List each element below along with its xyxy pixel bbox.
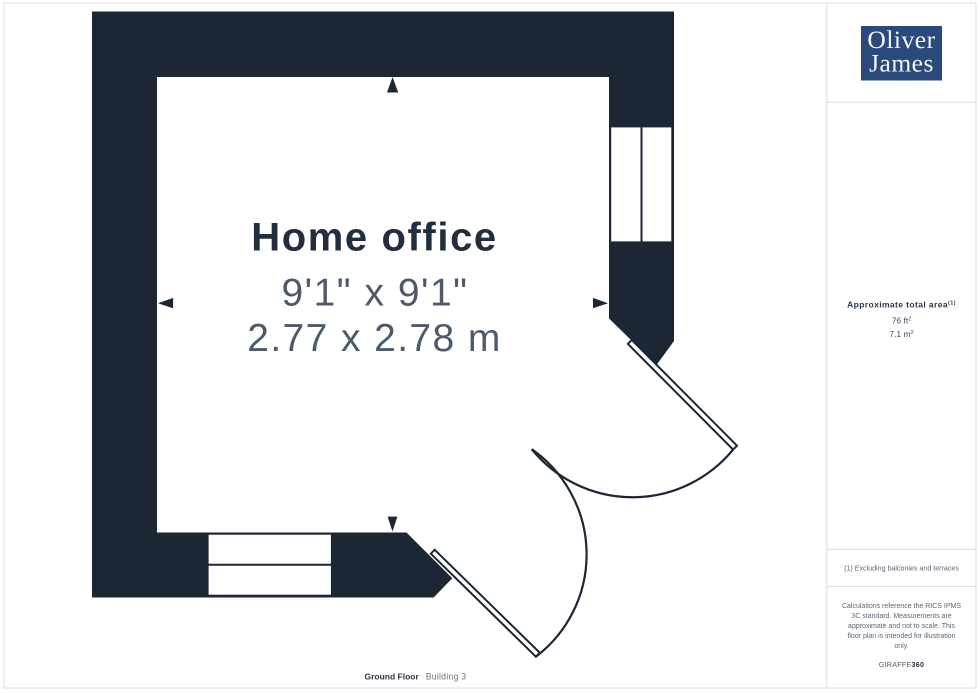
svg-text:approximate and not to scale.: approximate and not to scale. This — [848, 623, 955, 630]
svg-text:(1) Excluding balconies and te: (1) Excluding balconies and terraces — [844, 565, 959, 573]
svg-text:James: James — [869, 49, 934, 78]
svg-text:Calculations reference the RIC: Calculations reference the RICS IPMS — [842, 603, 961, 610]
svg-text:9'1" x 9'1": 9'1" x 9'1" — [281, 272, 468, 315]
svg-text:GIRAFFE360: GIRAFFE360 — [879, 661, 925, 669]
svg-text:2.77 x 2.78 m: 2.77 x 2.78 m — [247, 317, 502, 360]
svg-text:Ground Floor: Ground Floor — [365, 672, 420, 682]
svg-text:Approximate total area(1): Approximate total area(1) — [847, 300, 956, 310]
svg-text:floor plan is intended for ill: floor plan is intended for illustration — [847, 633, 955, 640]
svg-text:Home office: Home office — [251, 216, 498, 260]
svg-text:3C standard. Measurements are: 3C standard. Measurements are — [851, 613, 951, 620]
svg-text:only.: only. — [894, 643, 908, 650]
svg-text:7.1 m2: 7.1 m2 — [889, 329, 913, 339]
svg-text:Building 3: Building 3 — [426, 672, 467, 682]
svg-text:76 ft2: 76 ft2 — [892, 315, 912, 325]
